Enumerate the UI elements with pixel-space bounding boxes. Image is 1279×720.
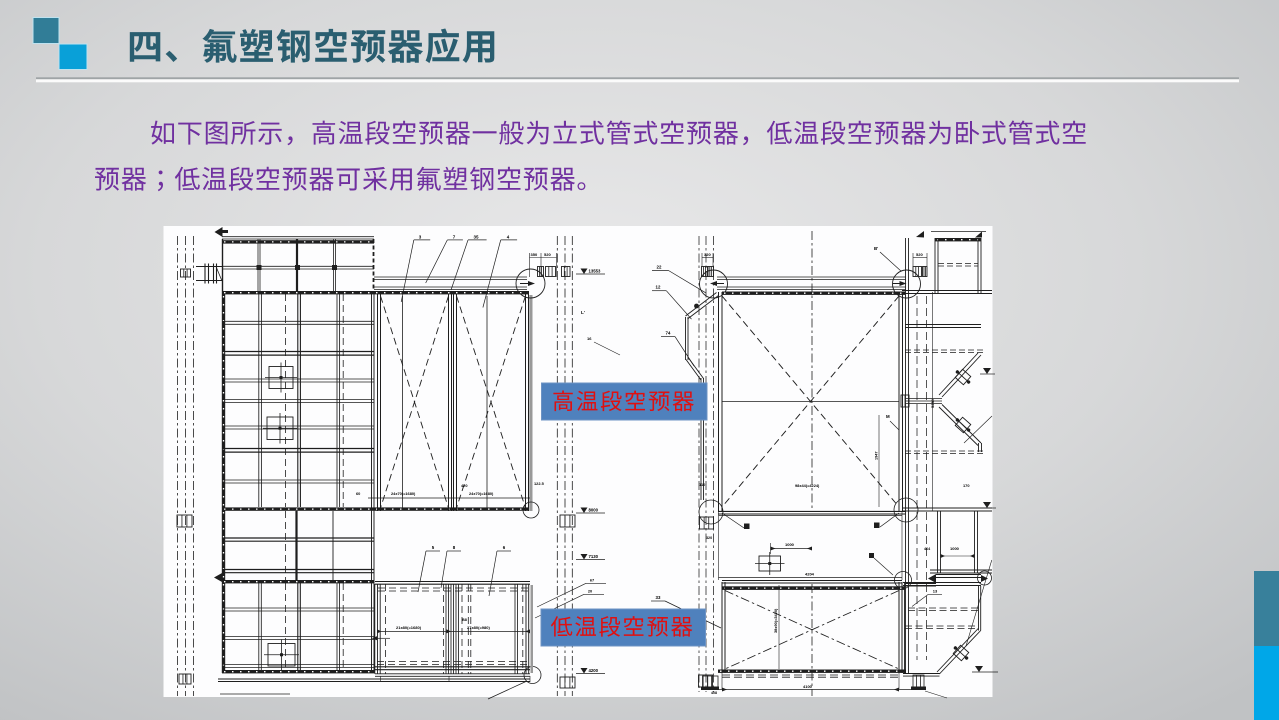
svg-text:122.5: 122.5 (534, 481, 545, 486)
svg-text:1000: 1000 (785, 542, 795, 547)
svg-text:B8: B8 (462, 618, 467, 622)
svg-text:320: 320 (706, 536, 712, 540)
svg-text:520: 520 (544, 252, 551, 257)
svg-text:35: 35 (473, 234, 479, 239)
svg-text:20: 20 (588, 589, 592, 594)
svg-text:464: 464 (924, 547, 931, 551)
svg-text:24x70(=1680): 24x70(=1680) (469, 491, 494, 496)
svg-text:4204: 4204 (805, 572, 815, 577)
svg-text:27x80(=980): 27x80(=980) (467, 625, 490, 630)
svg-text:22: 22 (657, 265, 662, 270)
svg-text:4100: 4100 (803, 684, 813, 689)
svg-text:60: 60 (356, 491, 360, 496)
svg-text:M: M (886, 414, 890, 419)
svg-text:74: 74 (666, 331, 671, 336)
svg-text:350: 350 (531, 252, 538, 257)
svg-text:13553: 13553 (589, 269, 602, 274)
svg-text:98x44(=4224): 98x44(=4224) (795, 483, 820, 488)
svg-text:33: 33 (656, 595, 661, 600)
svg-text:7130: 7130 (589, 554, 599, 559)
svg-text:67: 67 (590, 578, 594, 583)
svg-text:320: 320 (704, 252, 711, 257)
svg-text:B': B' (874, 246, 878, 251)
svg-text:13: 13 (933, 589, 938, 594)
svg-text:420: 420 (461, 483, 468, 488)
svg-text:408: 408 (711, 691, 717, 695)
svg-text:4200: 4200 (589, 668, 599, 673)
svg-text:1000: 1000 (950, 546, 960, 551)
svg-text:24x70(=1680): 24x70(=1680) (391, 491, 416, 496)
svg-text:1947: 1947 (875, 452, 879, 460)
svg-text:L': L' (581, 310, 585, 315)
svg-text:21x80(=1680): 21x80(=1680) (396, 625, 422, 630)
svg-text:12: 12 (656, 285, 661, 290)
svg-text:8000: 8000 (589, 508, 599, 513)
svg-text:110: 110 (699, 482, 705, 487)
svg-text:38x90(=3420): 38x90(=3420) (773, 608, 778, 633)
svg-text:520: 520 (916, 252, 923, 257)
svg-text:170: 170 (963, 483, 970, 488)
svg-text:16: 16 (587, 336, 592, 341)
